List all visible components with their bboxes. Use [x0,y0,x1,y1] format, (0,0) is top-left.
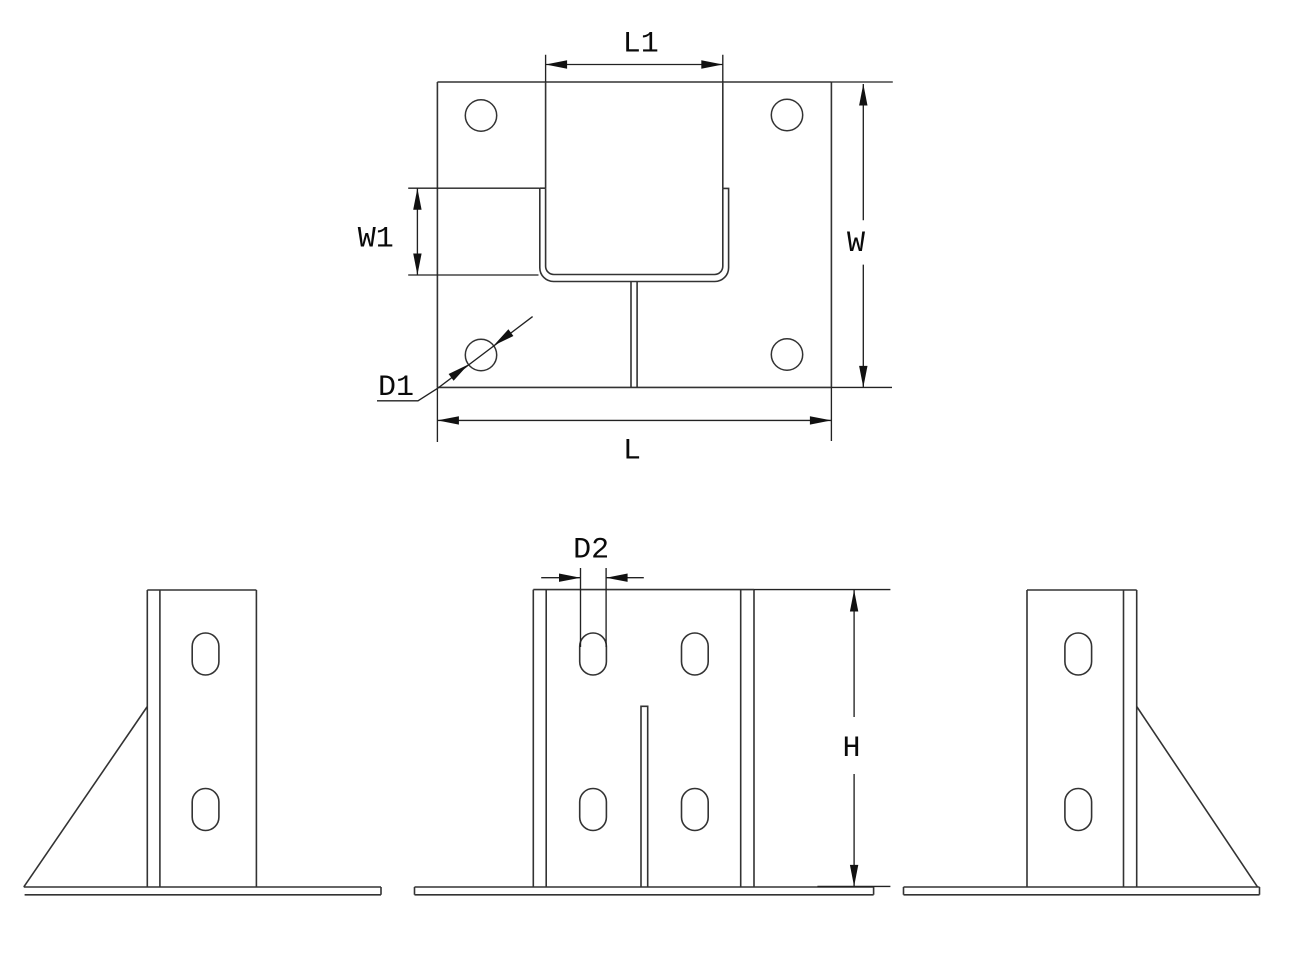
svg-text:L1: L1 [623,28,659,62]
svg-text:L: L [623,435,641,469]
svg-text:D1: D1 [378,371,414,405]
svg-text:W: W [847,227,865,261]
svg-text:D2: D2 [573,534,609,568]
svg-text:W1: W1 [358,222,394,256]
svg-text:H: H [842,732,860,766]
